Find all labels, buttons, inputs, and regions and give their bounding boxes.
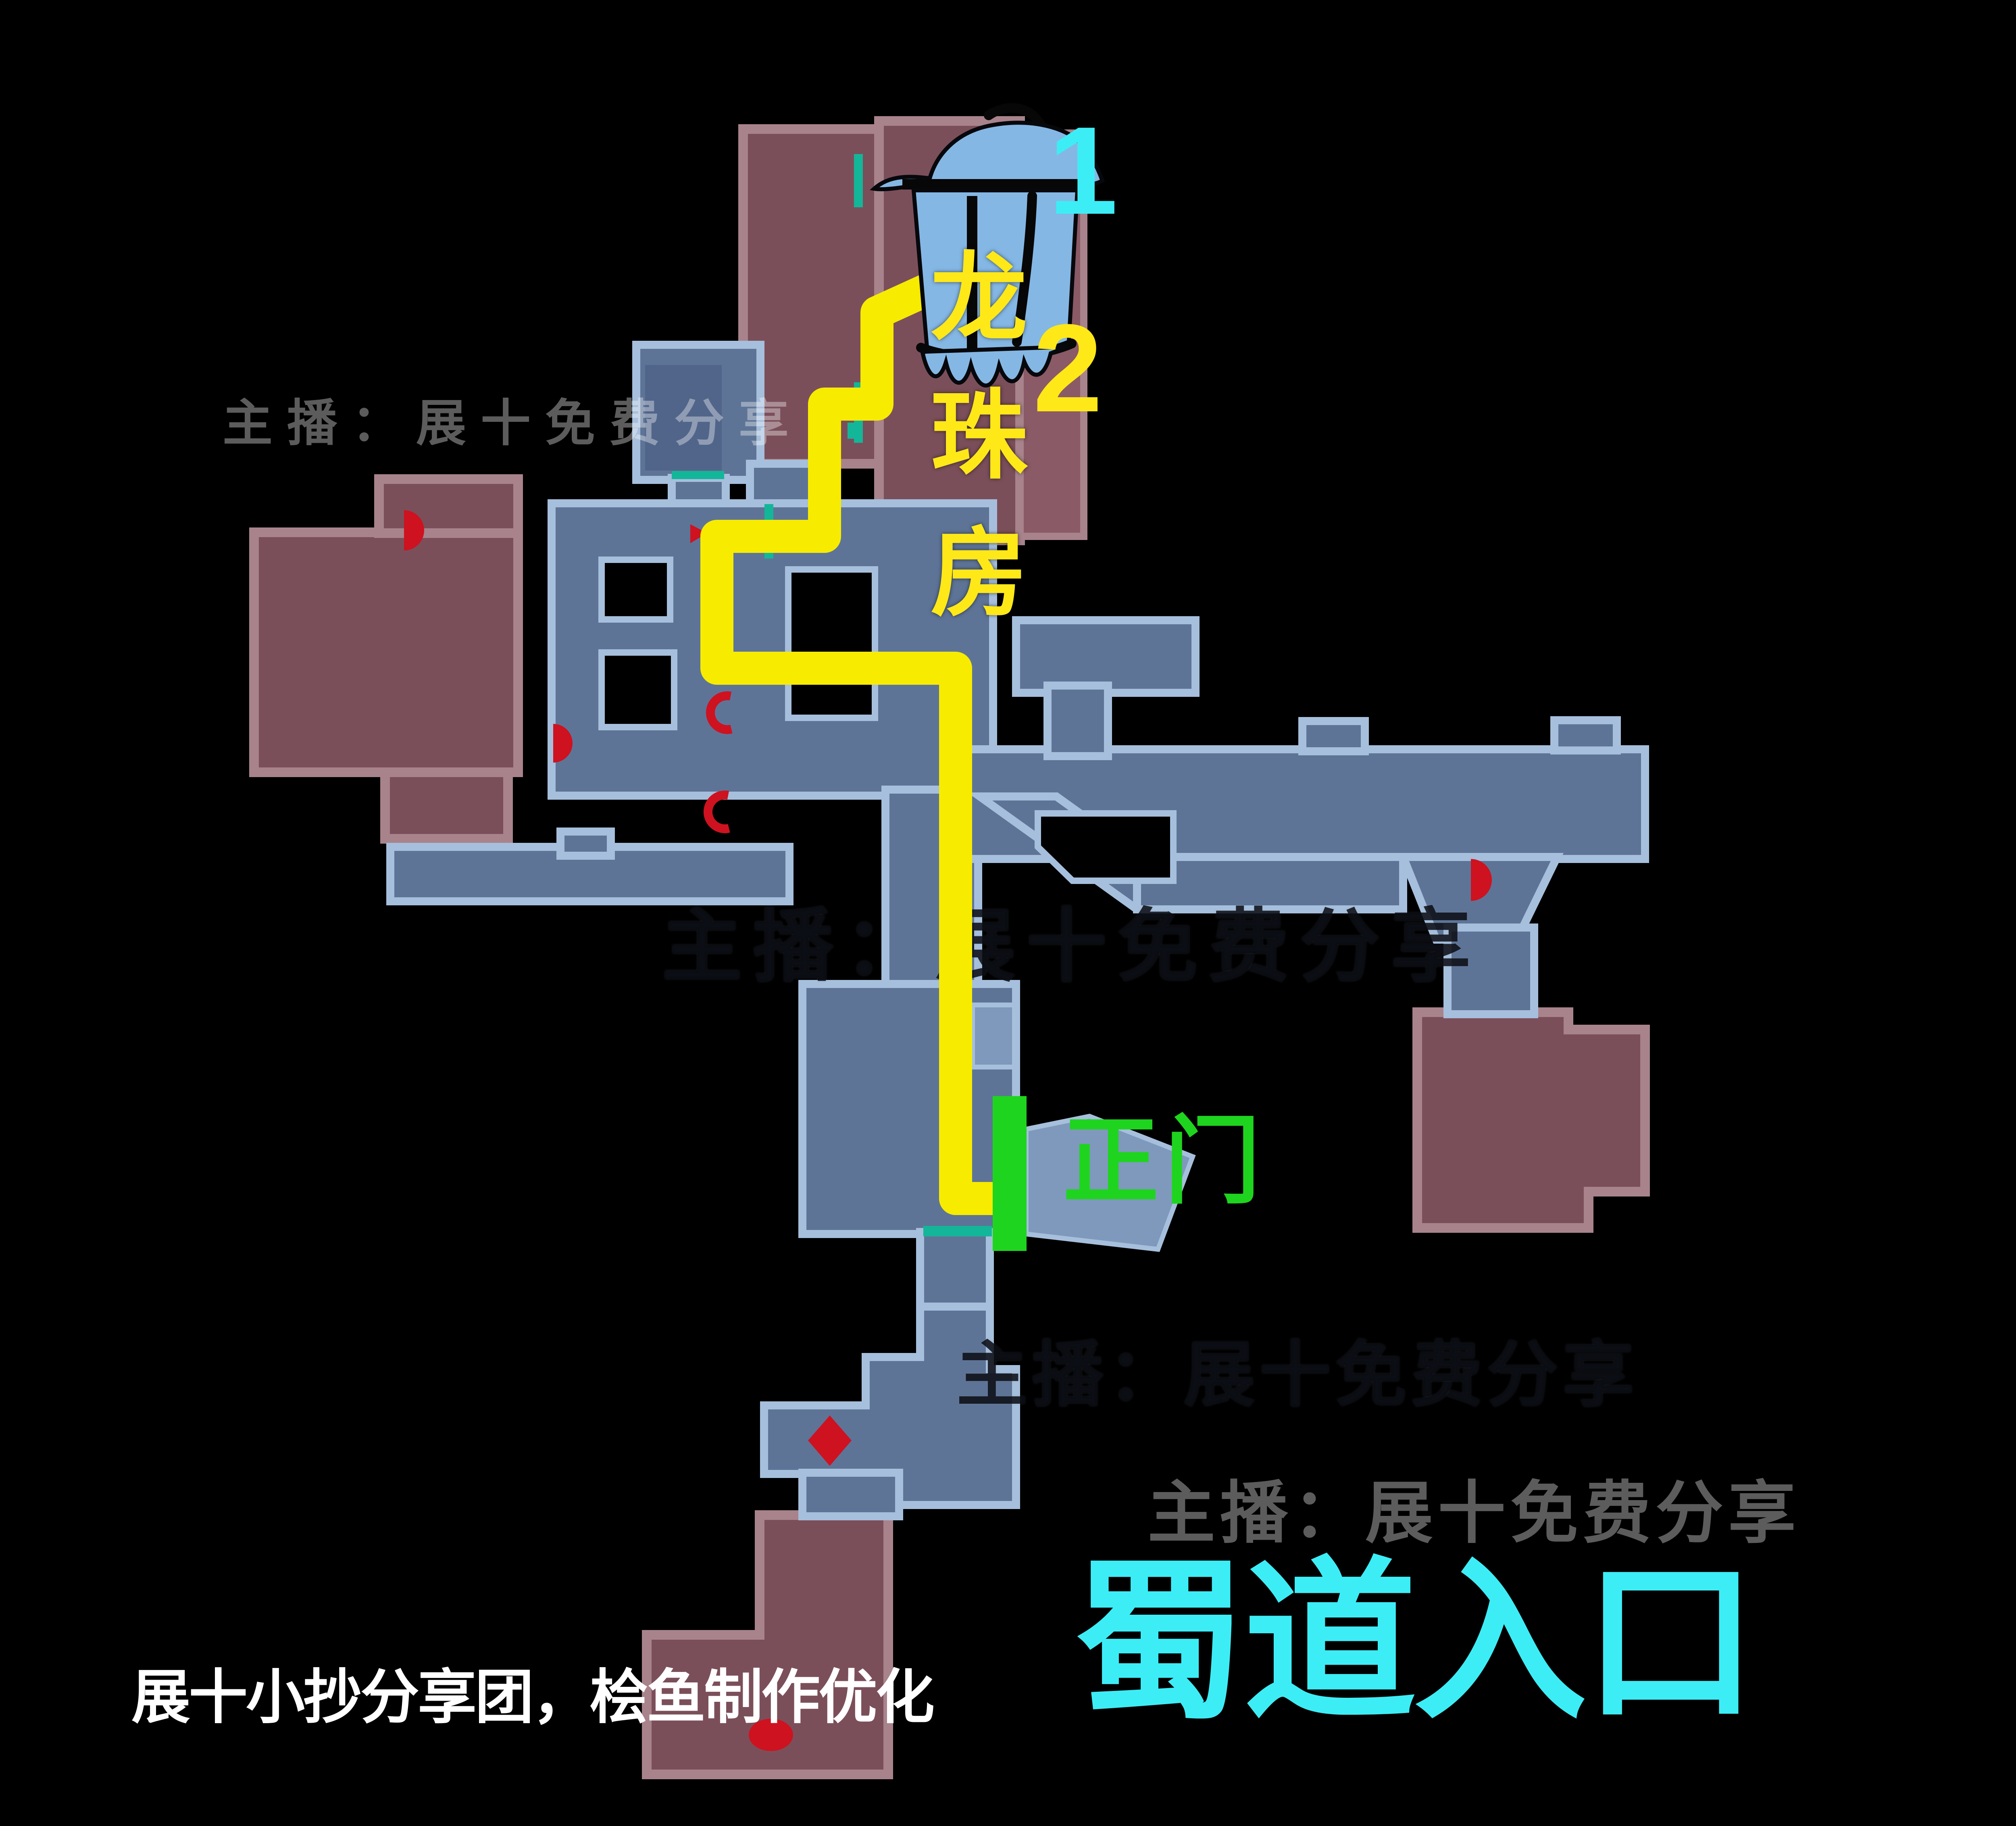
label-waypoint-2: 2 [1033, 306, 1102, 431]
entrance-title: 蜀道入口 [1073, 1556, 1754, 1729]
label-waypoint-1: 1 [1048, 108, 1118, 233]
label-dragon-pearl-room: 龙珠房 [931, 230, 1032, 642]
credit-line: 展十小抄分享团，桧鱼制作优化 [131, 1668, 933, 1727]
gate-bar-marker [993, 1096, 1027, 1251]
map-canvas: 主播：展十免费分享 主播：展十免费分享 主播：展十免费分享 主播：展十免费分享 … [0, 0, 2016, 1826]
label-main-gate: 正门 [1063, 1114, 1266, 1210]
